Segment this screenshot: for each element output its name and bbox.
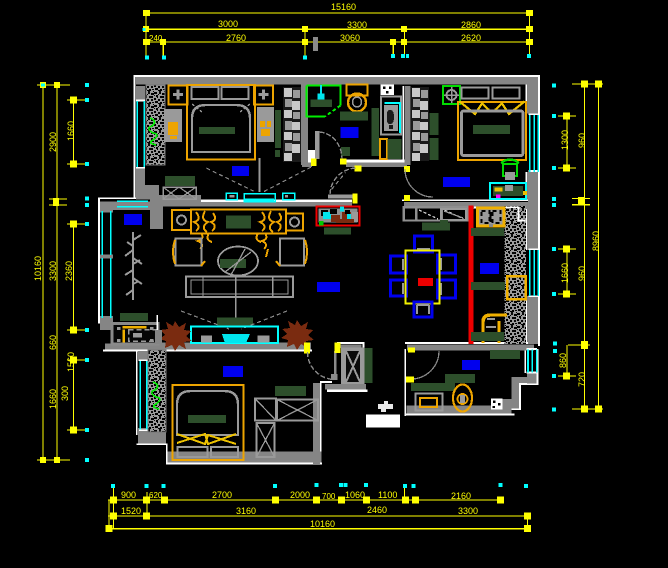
svg-text:720: 720 [577,372,587,387]
svg-text:3060: 3060 [340,33,360,43]
svg-text:660: 660 [48,335,58,350]
svg-text:2900: 2900 [48,132,58,152]
svg-text:900: 900 [121,490,136,500]
svg-text:1660: 1660 [48,389,58,409]
svg-text:300: 300 [60,386,70,401]
svg-text:3300: 3300 [48,261,58,281]
svg-text:1100: 1100 [378,490,397,500]
svg-text:240: 240 [149,34,163,43]
svg-text:2160: 2160 [451,491,471,501]
svg-text:1300: 1300 [560,130,570,150]
svg-text:2360: 2360 [64,261,74,281]
svg-text:620: 620 [149,491,163,500]
svg-text:2760: 2760 [226,33,246,43]
svg-text:3160: 3160 [236,506,256,516]
svg-text:2620: 2620 [461,33,481,43]
svg-text:1660: 1660 [66,121,76,141]
svg-text:2460: 2460 [367,505,387,515]
svg-text:860: 860 [558,353,568,368]
svg-text:1660: 1660 [560,263,570,283]
svg-text:960: 960 [577,266,587,281]
svg-text:1560: 1560 [66,352,76,372]
svg-text:2700: 2700 [212,490,232,500]
svg-text:10160: 10160 [310,519,335,529]
svg-text:700: 700 [322,492,336,501]
svg-text:2860: 2860 [461,20,481,30]
svg-text:1060: 1060 [345,490,365,500]
svg-text:960: 960 [577,133,587,148]
svg-text:10160: 10160 [33,256,43,281]
svg-text:8960: 8960 [591,231,601,251]
svg-text:3000: 3000 [218,19,238,29]
svg-text:3300: 3300 [347,20,367,30]
svg-text:15160: 15160 [331,2,356,12]
svg-text:2000: 2000 [290,490,310,500]
svg-text:1520: 1520 [121,506,141,516]
svg-text:3300: 3300 [458,506,478,516]
